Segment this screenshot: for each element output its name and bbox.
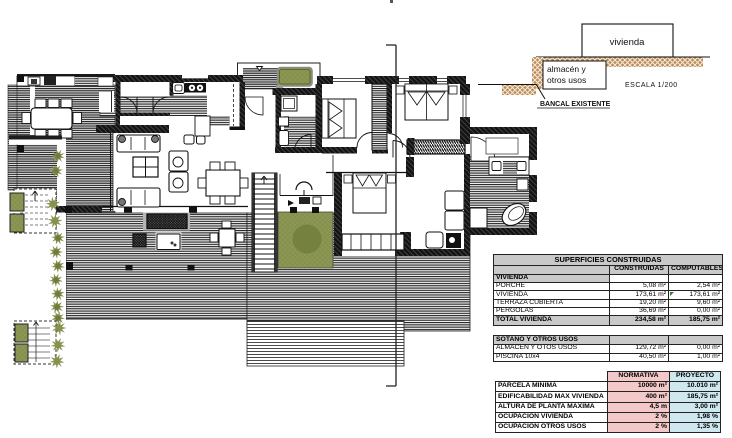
svg-text:vivienda: vivienda (610, 37, 646, 48)
svg-text:ESCALA 1/200: ESCALA 1/200 (625, 82, 678, 89)
svg-text:BANCAL EXISTENTE: BANCAL EXISTENTE (540, 101, 611, 108)
svg-text:almacén y: almacén y (547, 64, 586, 74)
svg-text:otros usos: otros usos (547, 75, 586, 85)
